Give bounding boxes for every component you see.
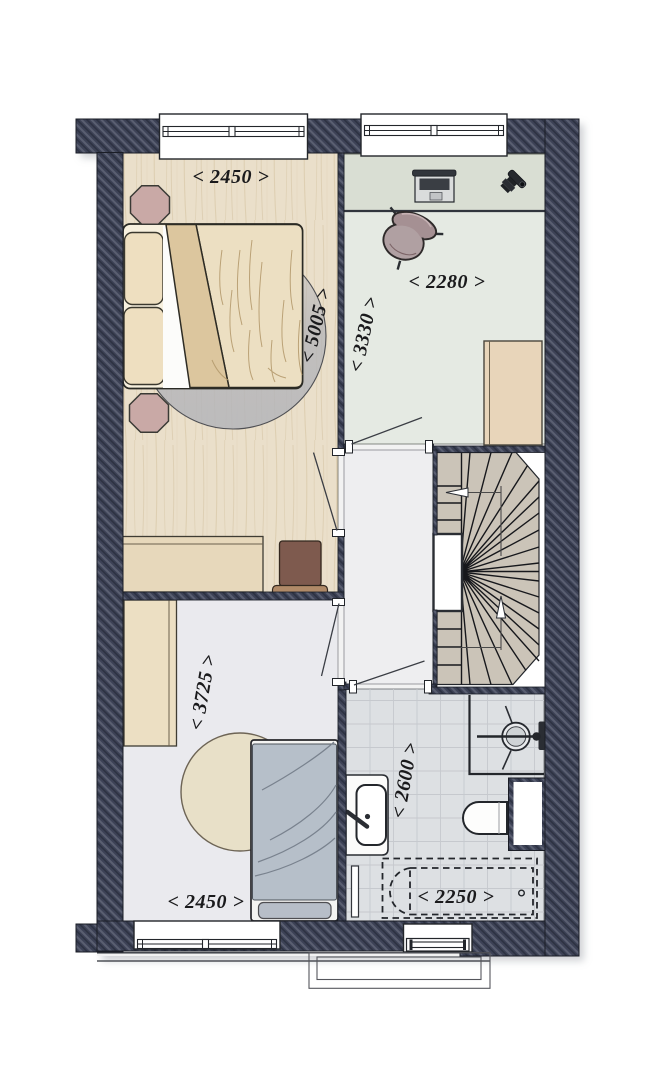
svg-text:< 2450 >: < 2450 > <box>168 891 245 913</box>
svg-text:< 2450 >: < 2450 > <box>193 166 270 188</box>
svg-text:< 2280 >: < 2280 > <box>409 271 486 293</box>
svg-text:< 2250 >: < 2250 > <box>418 886 495 908</box>
